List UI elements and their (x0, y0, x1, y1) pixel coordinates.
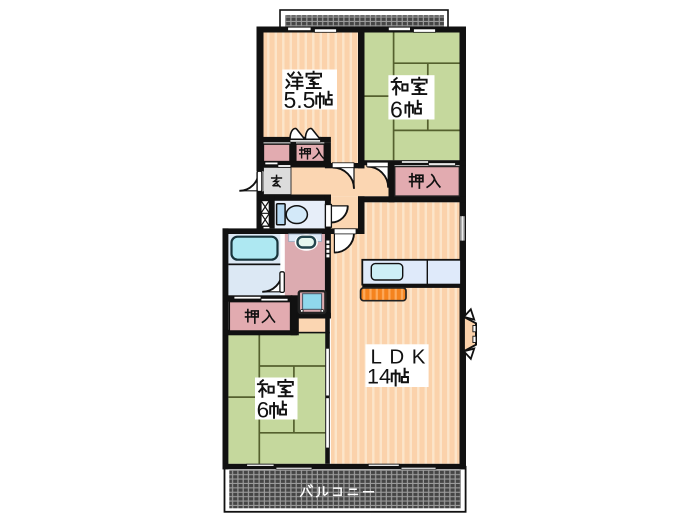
svg-text:6: 6 (390, 97, 403, 123)
svg-text:5.5: 5.5 (284, 87, 316, 113)
svg-text:6: 6 (257, 398, 270, 423)
svg-text:14: 14 (367, 365, 391, 389)
